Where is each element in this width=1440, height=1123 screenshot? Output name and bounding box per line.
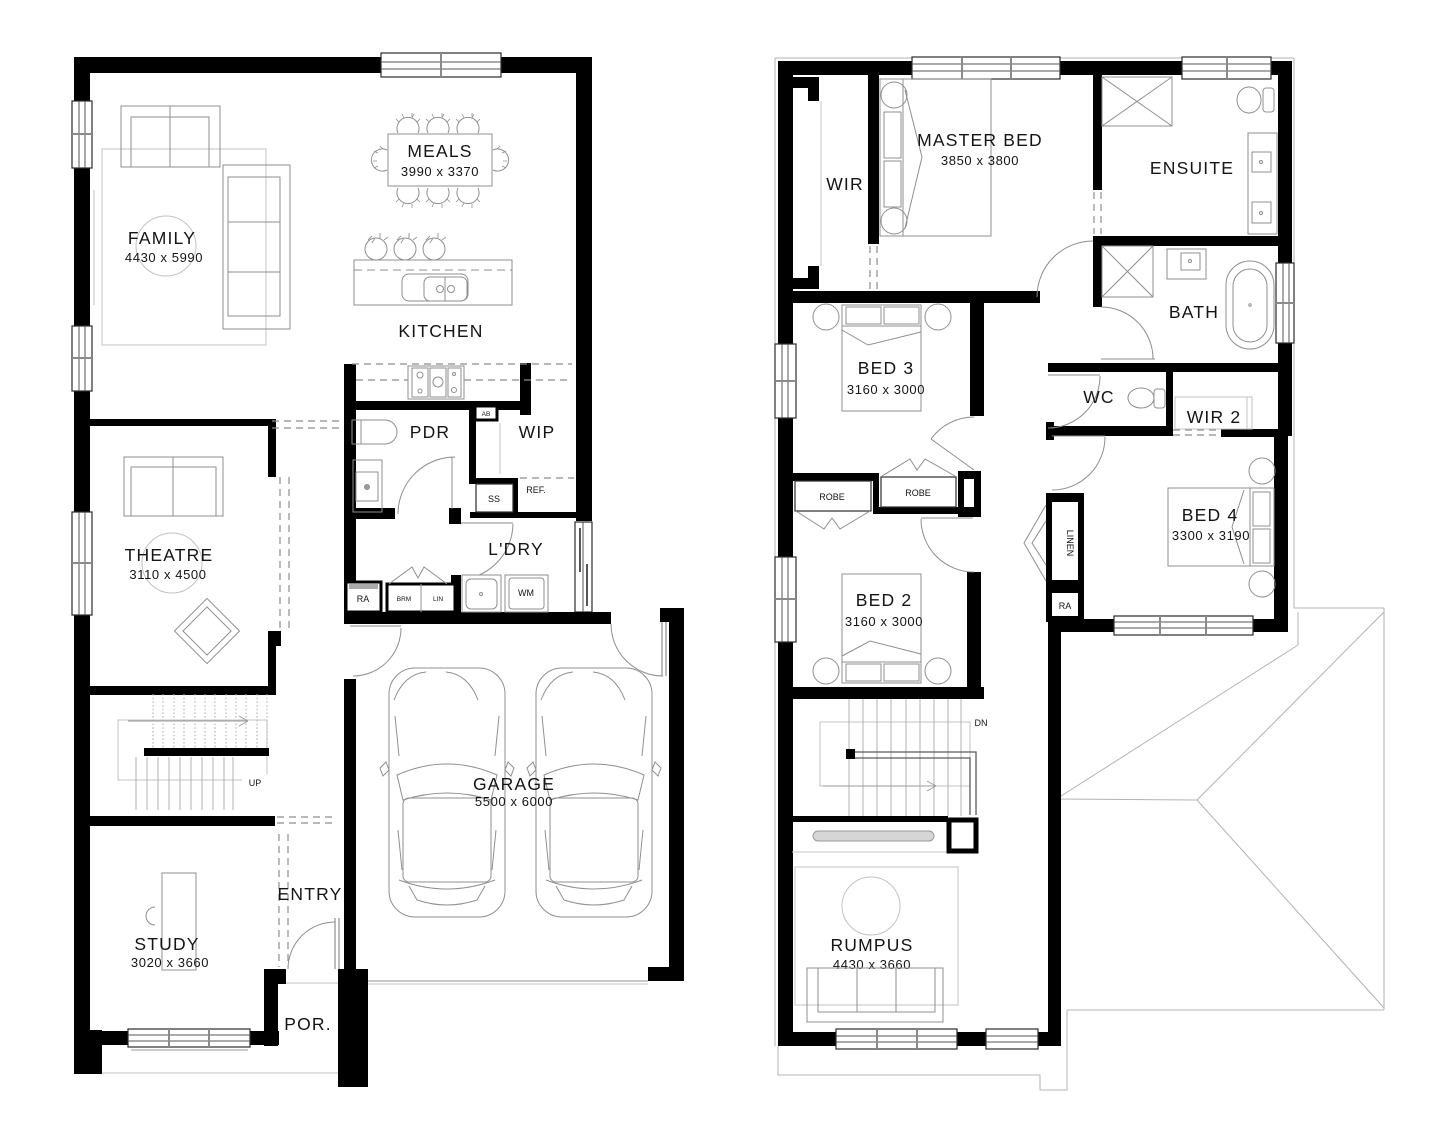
svg-text:4430 x 5990: 4430 x 5990 [125,250,203,265]
svg-text:3160 x 3000: 3160 x 3000 [847,382,925,397]
svg-text:AB: AB [482,411,491,418]
svg-text:3020 x 3660: 3020 x 3660 [131,955,209,970]
svg-text:4430 x 3660: 4430 x 3660 [833,957,911,972]
svg-text:ENTRY: ENTRY [278,884,343,904]
svg-text:DN: DN [975,718,988,728]
svg-text:L'DRY: L'DRY [488,539,544,559]
svg-text:STUDY: STUDY [134,934,199,954]
svg-text:MEALS: MEALS [407,141,472,161]
svg-text:3990 x 3370: 3990 x 3370 [401,164,479,179]
svg-text:WM: WM [518,588,534,598]
svg-text:ROBE: ROBE [905,488,931,498]
svg-text:FAMILY: FAMILY [128,228,196,248]
svg-text:ROBE: ROBE [819,492,845,502]
svg-text:POR.: POR. [284,1014,332,1034]
svg-text:THEATRE: THEATRE [125,545,214,565]
svg-text:3850 x 3800: 3850 x 3800 [941,153,1019,168]
svg-text:3300 x 3190: 3300 x 3190 [1172,528,1250,543]
svg-text:BED 3: BED 3 [858,358,915,378]
svg-text:WIR 2: WIR 2 [1187,407,1242,427]
svg-text:REF.: REF. [526,485,546,495]
svg-text:3160 x 3000: 3160 x 3000 [845,614,923,629]
svg-text:ENSUITE: ENSUITE [1150,158,1234,178]
svg-text:KITCHEN: KITCHEN [398,321,483,341]
svg-text:3110 x 4500: 3110 x 4500 [129,567,206,582]
svg-text:WIR: WIR [826,174,864,194]
svg-text:BED 2: BED 2 [856,590,913,610]
svg-text:WIP: WIP [519,422,556,442]
svg-text:RUMPUS: RUMPUS [830,935,913,955]
svg-text:SS: SS [488,494,500,504]
svg-text:WC: WC [1083,387,1115,407]
svg-text:RA: RA [357,594,370,604]
svg-text:MASTER BED: MASTER BED [917,130,1043,150]
svg-text:BATH: BATH [1169,302,1219,322]
svg-text:GARAGE: GARAGE [473,774,555,794]
svg-text:5500 x 6000: 5500 x 6000 [475,794,553,809]
svg-text:LINEN: LINEN [1065,530,1075,557]
svg-text:BRM: BRM [397,596,411,603]
svg-text:LIN: LIN [433,596,443,603]
svg-text:UP: UP [249,778,262,788]
svg-text:RA: RA [1059,601,1072,611]
svg-text:PDR: PDR [410,422,451,442]
svg-text:BED 4: BED 4 [1182,505,1239,525]
